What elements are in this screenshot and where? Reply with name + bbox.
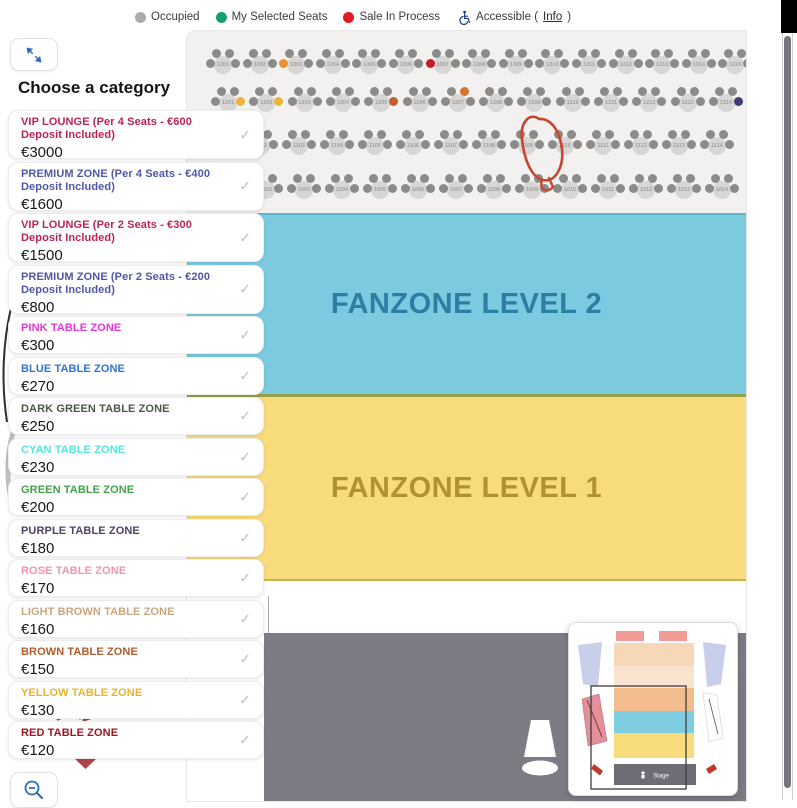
- seat[interactable]: [611, 140, 620, 149]
- seat[interactable]: [320, 140, 329, 149]
- table-1303[interactable]: 1303: [279, 49, 313, 77]
- seat[interactable]: [499, 59, 508, 68]
- seat[interactable]: [510, 140, 519, 149]
- seat[interactable]: [293, 174, 302, 183]
- seat[interactable]: [383, 140, 392, 149]
- seat[interactable]: [502, 184, 511, 193]
- seat[interactable]: [408, 49, 417, 58]
- table-1314[interactable]: 1314: [682, 49, 716, 77]
- seat[interactable]: [554, 130, 563, 139]
- seat[interactable]: [630, 130, 639, 139]
- seat[interactable]: [497, 140, 506, 149]
- seat[interactable]: [268, 174, 277, 183]
- seat[interactable]: [339, 130, 348, 139]
- table-1315[interactable]: 1315: [718, 49, 747, 77]
- seat[interactable]: [649, 140, 658, 149]
- category-card-15[interactable]: RED TABLE ZONE€120✓: [8, 721, 264, 759]
- seat[interactable]: [696, 97, 705, 106]
- seat[interactable]: [458, 174, 467, 183]
- seat[interactable]: [605, 130, 614, 139]
- seat[interactable]: [705, 184, 714, 193]
- table-1203[interactable]: 1203: [288, 87, 322, 115]
- seat[interactable]: [715, 87, 724, 96]
- seat[interactable]: [581, 97, 590, 106]
- table-1012[interactable]: 1012: [629, 174, 663, 202]
- seat[interactable]: [668, 130, 677, 139]
- table-1301[interactable]: 1301: [206, 49, 240, 77]
- table-1004[interactable]: 1004: [325, 174, 359, 202]
- seat[interactable]: [677, 87, 686, 96]
- category-name: PURPLE TABLE ZONE: [21, 525, 229, 538]
- category-card-2[interactable]: PREMIUM ZONE (Per 4 Seats - €400 Deposit…: [8, 162, 264, 211]
- seat[interactable]: [688, 49, 697, 58]
- seat[interactable]: [504, 97, 513, 106]
- table-1206[interactable]: 1206: [403, 87, 437, 115]
- seat[interactable]: [236, 97, 245, 106]
- table-1010[interactable]: 1010: [553, 174, 587, 202]
- table-number: 1104: [328, 137, 346, 155]
- seat[interactable]: [681, 130, 690, 139]
- seat[interactable]: [351, 97, 360, 106]
- table-number: 1313: [653, 56, 671, 74]
- seat[interactable]: [572, 174, 581, 183]
- seat[interactable]: [610, 174, 619, 183]
- table-1113[interactable]: 1113: [662, 130, 696, 158]
- seat[interactable]: [301, 130, 310, 139]
- table-1109[interactable]: 1109: [510, 130, 544, 158]
- seat[interactable]: [624, 140, 633, 149]
- seat[interactable]: [670, 59, 679, 68]
- seat[interactable]: [212, 49, 221, 58]
- seat[interactable]: [382, 174, 391, 183]
- seat[interactable]: [225, 49, 234, 58]
- seat[interactable]: [322, 49, 331, 58]
- table-1111[interactable]: 1111: [586, 130, 620, 158]
- seat[interactable]: [654, 184, 663, 193]
- table-1210[interactable]: 1210: [556, 87, 590, 115]
- seat[interactable]: [707, 59, 716, 68]
- minimap-fanzone2: [614, 711, 694, 733]
- vertical-scrollbar[interactable]: [782, 33, 793, 800]
- table-1014[interactable]: 1014: [705, 174, 739, 202]
- seat[interactable]: [402, 130, 411, 139]
- seat[interactable]: [575, 87, 584, 96]
- seat[interactable]: [594, 97, 603, 106]
- minimap-fanzone1: [614, 733, 694, 758]
- seat[interactable]: [288, 130, 297, 139]
- seat[interactable]: [536, 87, 545, 96]
- table-1108[interactable]: 1108: [472, 130, 506, 158]
- seat[interactable]: [629, 184, 638, 193]
- seat[interactable]: [307, 87, 316, 96]
- seat[interactable]: [505, 49, 514, 58]
- seat[interactable]: [657, 97, 666, 106]
- seat[interactable]: [459, 140, 468, 149]
- category-card-6[interactable]: BLUE TABLE ZONE€270✓: [8, 357, 264, 395]
- seat[interactable]: [730, 184, 739, 193]
- seat[interactable]: [483, 174, 492, 183]
- seat[interactable]: [615, 49, 624, 58]
- seat[interactable]: [306, 174, 315, 183]
- seat[interactable]: [269, 140, 278, 149]
- table-1308[interactable]: 1308: [462, 49, 496, 77]
- seat[interactable]: [294, 87, 303, 96]
- seat[interactable]: [578, 184, 587, 193]
- table-1307[interactable]: 1307: [426, 49, 460, 77]
- seat[interactable]: [371, 49, 380, 58]
- seat[interactable]: [426, 59, 435, 68]
- seat[interactable]: [711, 174, 720, 183]
- table-1305[interactable]: 1305: [352, 49, 386, 77]
- table-1205[interactable]: 1205: [364, 87, 398, 115]
- seat[interactable]: [369, 174, 378, 183]
- seat[interactable]: [609, 59, 618, 68]
- seat[interactable]: [559, 174, 568, 183]
- table-1209[interactable]: 1209: [517, 87, 551, 115]
- seat[interactable]: [487, 59, 496, 68]
- seat[interactable]: [288, 97, 297, 106]
- seat[interactable]: [664, 49, 673, 58]
- seat[interactable]: [464, 184, 473, 193]
- table-number: 1106: [404, 137, 422, 155]
- table-1304[interactable]: 1304: [316, 49, 350, 77]
- seat[interactable]: [635, 174, 644, 183]
- scrollbar-thumb[interactable]: [784, 36, 791, 788]
- category-card-10[interactable]: PURPLE TABLE ZONE€180✓: [8, 519, 264, 557]
- seat[interactable]: [743, 59, 747, 68]
- category-card-1[interactable]: VIP LOUNGE (Per 4 Seats - €600 Deposit I…: [8, 110, 264, 159]
- seat[interactable]: [586, 140, 595, 149]
- seat[interactable]: [560, 59, 569, 68]
- check-icon: ✓: [239, 489, 251, 506]
- seat[interactable]: [268, 59, 277, 68]
- table-1106[interactable]: 1106: [396, 130, 430, 158]
- seat[interactable]: [535, 140, 544, 149]
- seat[interactable]: [597, 59, 606, 68]
- check-icon: ✓: [239, 408, 251, 425]
- seat[interactable]: [313, 97, 322, 106]
- check-icon: ✓: [239, 610, 251, 627]
- table-1309[interactable]: 1309: [499, 49, 533, 77]
- seat[interactable]: [211, 97, 220, 106]
- table-number: 1103: [290, 137, 308, 155]
- zoom-out-button[interactable]: [10, 772, 58, 808]
- seat[interactable]: [364, 130, 373, 139]
- category-card-7[interactable]: DARK GREEN TABLE ZONE€250✓: [8, 397, 264, 435]
- table-1114[interactable]: 1114: [700, 130, 734, 158]
- table-number: 1212: [640, 94, 658, 112]
- seat[interactable]: [737, 49, 746, 58]
- seat[interactable]: [542, 97, 551, 106]
- seat[interactable]: [529, 130, 538, 139]
- table-1007[interactable]: 1007: [439, 174, 473, 202]
- category-card-8[interactable]: CYAN TABLE ZONE€230✓: [8, 438, 264, 476]
- seat[interactable]: [671, 97, 680, 106]
- table-1204[interactable]: 1204: [326, 87, 360, 115]
- table-1313[interactable]: 1313: [645, 49, 679, 77]
- seat[interactable]: [578, 49, 587, 58]
- seat[interactable]: [341, 59, 350, 68]
- seat[interactable]: [725, 140, 734, 149]
- expand-button[interactable]: [10, 38, 58, 71]
- seat[interactable]: [466, 97, 475, 106]
- seat[interactable]: [217, 87, 226, 96]
- seat[interactable]: [516, 130, 525, 139]
- seat[interactable]: [447, 87, 456, 96]
- seat[interactable]: [682, 59, 691, 68]
- seat[interactable]: [573, 140, 582, 149]
- minimap[interactable]: Stage: [568, 622, 738, 796]
- seat[interactable]: [421, 140, 430, 149]
- seat[interactable]: [616, 184, 625, 193]
- table-number: 1204: [334, 94, 352, 112]
- seat[interactable]: [377, 130, 386, 139]
- table-number: 1311: [580, 56, 598, 74]
- seat[interactable]: [395, 49, 404, 58]
- seat[interactable]: [407, 174, 416, 183]
- seat[interactable]: [515, 184, 524, 193]
- seat[interactable]: [687, 140, 696, 149]
- table-number: 1011: [599, 181, 617, 199]
- seat[interactable]: [613, 87, 622, 96]
- seat[interactable]: [401, 184, 410, 193]
- seat[interactable]: [335, 49, 344, 58]
- table-1302[interactable]: 1302: [243, 49, 277, 77]
- table-1005[interactable]: 1005: [363, 174, 397, 202]
- seat[interactable]: [728, 87, 737, 96]
- seat[interactable]: [498, 87, 507, 96]
- table-1112[interactable]: 1112: [624, 130, 658, 158]
- seat[interactable]: [345, 87, 354, 96]
- table-1003[interactable]: 1003: [287, 174, 321, 202]
- seat[interactable]: [673, 174, 682, 183]
- category-card-5[interactable]: PINK TABLE ZONE€300✓: [8, 316, 264, 354]
- seat[interactable]: [591, 49, 600, 58]
- seat[interactable]: [316, 59, 325, 68]
- seat[interactable]: [422, 87, 431, 96]
- seat[interactable]: [307, 140, 316, 149]
- minimap-pink-wedge: [582, 694, 607, 746]
- table-1207[interactable]: 1207: [441, 87, 475, 115]
- seat[interactable]: [706, 130, 715, 139]
- seat[interactable]: [460, 87, 469, 96]
- category-card-11[interactable]: ROSE TABLE ZONE€170✓: [8, 559, 264, 597]
- seat[interactable]: [439, 184, 448, 193]
- table-1211[interactable]: 1211: [594, 87, 628, 115]
- category-card-4[interactable]: PREMIUM ZONE (Per 2 Seats - €200 Deposit…: [8, 265, 264, 314]
- table-1104[interactable]: 1104: [320, 130, 354, 158]
- table-number: 1109: [518, 137, 536, 155]
- seat[interactable]: [350, 184, 359, 193]
- seat[interactable]: [332, 87, 341, 96]
- seat[interactable]: [643, 130, 652, 139]
- table-number: 1305: [360, 56, 378, 74]
- table-1110[interactable]: 1110: [548, 130, 582, 158]
- seat[interactable]: [409, 87, 418, 96]
- seat[interactable]: [326, 130, 335, 139]
- table-1009[interactable]: 1009: [515, 174, 549, 202]
- seat[interactable]: [592, 130, 601, 139]
- seat[interactable]: [619, 97, 628, 106]
- table-number: 1214: [717, 94, 735, 112]
- category-card-3[interactable]: VIP LOUNGE (Per 2 Seats - €300 Deposit I…: [8, 213, 264, 262]
- category-card-12[interactable]: LIGHT BROWN TABLE ZONE€160✓: [8, 600, 264, 638]
- category-card-13[interactable]: BROWN TABLE ZONE€150✓: [8, 640, 264, 678]
- seat[interactable]: [686, 174, 695, 183]
- seat[interactable]: [298, 49, 307, 58]
- table-1214[interactable]: 1214: [709, 87, 743, 115]
- table-1011[interactable]: 1011: [591, 174, 625, 202]
- category-card-14[interactable]: YELLOW TABLE ZONE€130✓: [8, 681, 264, 719]
- seat[interactable]: [389, 97, 398, 106]
- seat[interactable]: [548, 140, 557, 149]
- seat[interactable]: [263, 130, 272, 139]
- seat[interactable]: [692, 184, 701, 193]
- seat[interactable]: [600, 87, 609, 96]
- seat[interactable]: [206, 59, 215, 68]
- table-number: 1008: [485, 181, 503, 199]
- seat[interactable]: [426, 184, 435, 193]
- seat[interactable]: [651, 87, 660, 96]
- seat[interactable]: [562, 87, 571, 96]
- seat[interactable]: [345, 140, 354, 149]
- seat[interactable]: [648, 174, 657, 183]
- seat[interactable]: [524, 59, 533, 68]
- table-1306[interactable]: 1306: [389, 49, 423, 77]
- seat[interactable]: [472, 140, 481, 149]
- seat[interactable]: [534, 174, 543, 183]
- table-1212[interactable]: 1212: [632, 87, 666, 115]
- seat[interactable]: [326, 97, 335, 106]
- table-1013[interactable]: 1013: [667, 174, 701, 202]
- seat[interactable]: [358, 140, 367, 149]
- seat[interactable]: [432, 49, 441, 58]
- seat[interactable]: [734, 97, 743, 106]
- table-number: 1010: [561, 181, 579, 199]
- fanzone-level-1[interactable]: FANZONE LEVEL 1: [187, 397, 746, 581]
- seat[interactable]: [662, 140, 671, 149]
- table-1310[interactable]: 1310: [535, 49, 569, 77]
- seat[interactable]: [701, 49, 710, 58]
- table-1311[interactable]: 1311: [572, 49, 606, 77]
- seat[interactable]: [481, 49, 490, 58]
- seat[interactable]: [477, 184, 486, 193]
- table-number: 1014: [713, 181, 731, 199]
- seat[interactable]: [451, 59, 460, 68]
- seat[interactable]: [230, 87, 239, 96]
- seat[interactable]: [428, 97, 437, 106]
- category-card-9[interactable]: GREEN TABLE ZONE€200✓: [8, 478, 264, 516]
- seat[interactable]: [690, 87, 699, 96]
- seat[interactable]: [325, 184, 334, 193]
- seat[interactable]: [389, 59, 398, 68]
- seat[interactable]: [415, 130, 424, 139]
- seat[interactable]: [724, 174, 733, 183]
- seat[interactable]: [262, 49, 271, 58]
- table-1103[interactable]: 1103: [282, 130, 316, 158]
- seat[interactable]: [344, 174, 353, 183]
- table-1208[interactable]: 1208: [479, 87, 513, 115]
- seat[interactable]: [597, 174, 606, 183]
- seat[interactable]: [420, 174, 429, 183]
- seat[interactable]: [556, 97, 565, 106]
- seat[interactable]: [383, 87, 392, 96]
- seat[interactable]: [388, 184, 397, 193]
- check-icon: ✓: [239, 229, 251, 246]
- seat[interactable]: [445, 174, 454, 183]
- seat[interactable]: [304, 59, 313, 68]
- seat[interactable]: [634, 59, 643, 68]
- seat[interactable]: [414, 59, 423, 68]
- seat[interactable]: [478, 130, 487, 139]
- category-name: BLUE TABLE ZONE: [21, 363, 229, 376]
- seat[interactable]: [274, 184, 283, 193]
- table-number: 1105: [366, 137, 384, 155]
- table-1312[interactable]: 1312: [609, 49, 643, 77]
- table-number: 1312: [617, 56, 635, 74]
- seat[interactable]: [667, 184, 676, 193]
- seat[interactable]: [377, 59, 386, 68]
- seat[interactable]: [567, 130, 576, 139]
- minimap-balcony-right: [659, 631, 687, 641]
- seat[interactable]: [700, 140, 709, 149]
- seat[interactable]: [572, 59, 581, 68]
- seat[interactable]: [496, 174, 505, 183]
- seat[interactable]: [628, 49, 637, 58]
- seat[interactable]: [249, 49, 258, 58]
- table-1008[interactable]: 1008: [477, 174, 511, 202]
- seat[interactable]: [363, 184, 372, 193]
- seat[interactable]: [540, 184, 549, 193]
- table-1105[interactable]: 1105: [358, 130, 392, 158]
- accessible-info-link[interactable]: Info: [543, 11, 562, 23]
- seat[interactable]: [274, 97, 283, 106]
- table-1107[interactable]: 1107: [434, 130, 468, 158]
- seat[interactable]: [719, 130, 728, 139]
- seat[interactable]: [312, 184, 321, 193]
- fanzone-level-2[interactable]: FANZONE LEVEL 2: [187, 213, 746, 397]
- seat[interactable]: [282, 140, 291, 149]
- seat[interactable]: [440, 130, 449, 139]
- seat[interactable]: [231, 59, 240, 68]
- seat[interactable]: [403, 97, 412, 106]
- table-1213[interactable]: 1213: [671, 87, 705, 115]
- category-name: VIP LOUNGE (Per 4 Seats - €600 Deposit I…: [21, 116, 229, 142]
- seat[interactable]: [268, 87, 277, 96]
- seat[interactable]: [709, 97, 718, 106]
- seat[interactable]: [331, 174, 340, 183]
- seat[interactable]: [553, 184, 562, 193]
- seat[interactable]: [445, 49, 454, 58]
- seat[interactable]: [441, 97, 450, 106]
- seat[interactable]: [521, 174, 530, 183]
- seat[interactable]: [434, 140, 443, 149]
- table-number: 1302: [251, 56, 269, 74]
- table-1006[interactable]: 1006: [401, 174, 435, 202]
- check-icon: ✓: [239, 651, 251, 668]
- category-name: LIGHT BROWN TABLE ZONE: [21, 606, 229, 619]
- seat[interactable]: [518, 49, 527, 58]
- seat[interactable]: [287, 184, 296, 193]
- seat[interactable]: [396, 140, 405, 149]
- seat[interactable]: [591, 184, 600, 193]
- seat[interactable]: [453, 130, 462, 139]
- table-number: 1111: [594, 137, 612, 155]
- seat[interactable]: [243, 59, 252, 68]
- seat[interactable]: [554, 49, 563, 58]
- seat[interactable]: [491, 130, 500, 139]
- category-price: €230: [21, 459, 229, 476]
